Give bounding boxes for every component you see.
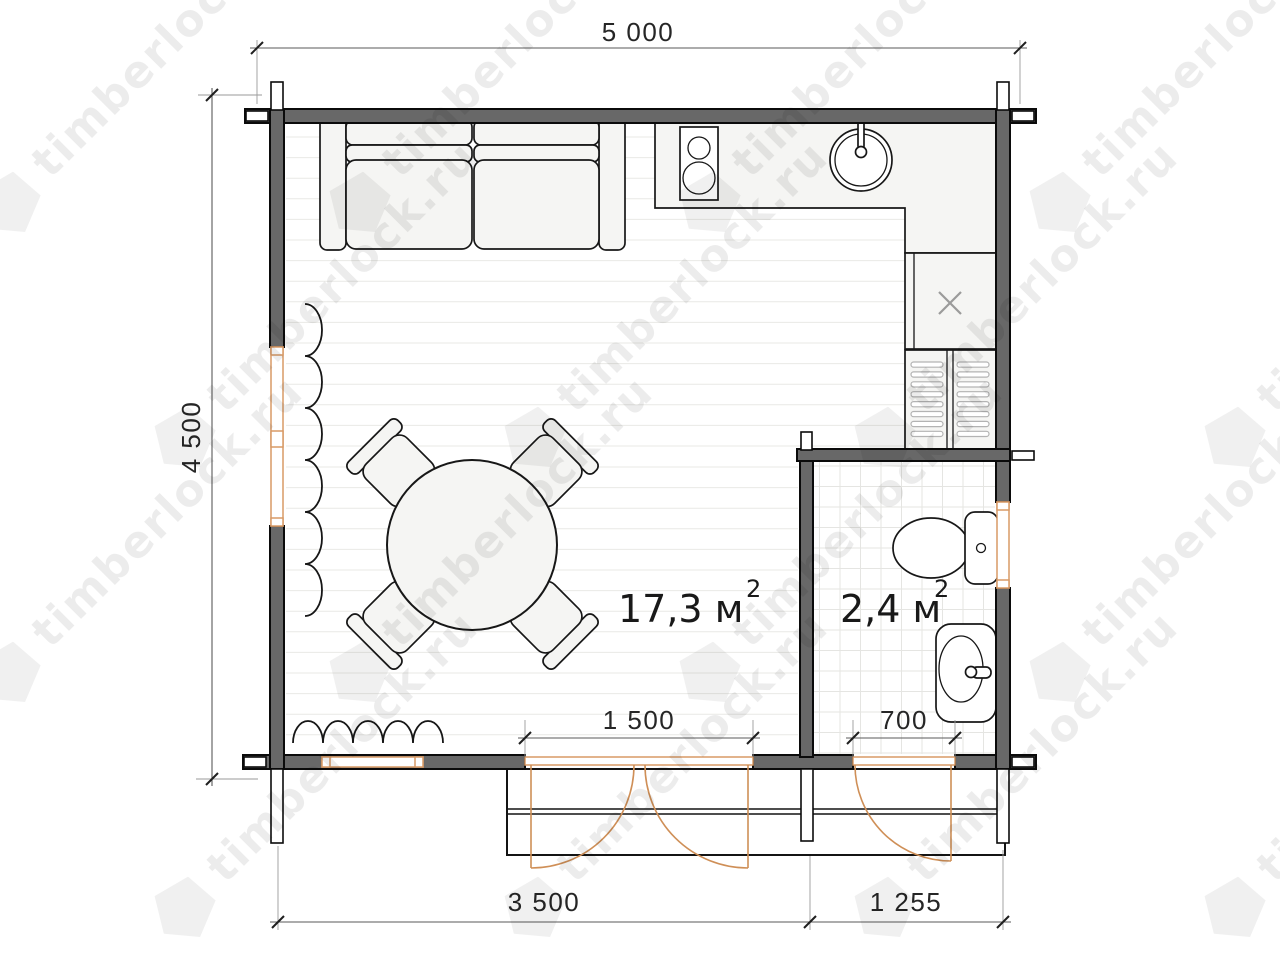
window-bathroom xyxy=(997,502,1009,588)
cooktop xyxy=(680,127,718,200)
sofa xyxy=(320,117,625,250)
door-threshold-bath xyxy=(853,757,955,765)
dim-door-main: 1 500 xyxy=(603,705,676,735)
log-stub xyxy=(246,111,268,121)
bath-faucet-head-icon xyxy=(966,667,977,678)
log-stub xyxy=(244,757,266,767)
log-stub xyxy=(271,769,283,843)
curtain-squiggle-left-icon xyxy=(305,304,322,616)
sofa-armrest-right xyxy=(599,117,625,250)
wall-left-upper xyxy=(270,109,284,347)
porch-deck xyxy=(507,769,1005,855)
dim-bottom-main: 3 500 xyxy=(508,887,581,917)
kitchen xyxy=(655,122,996,449)
log-stub xyxy=(997,82,1009,110)
bathroom-area-sup: 2 xyxy=(934,575,949,603)
dim-bottom-bath: 1 255 xyxy=(870,887,943,917)
log-stub xyxy=(271,82,283,110)
main-room-area-sup: 2 xyxy=(746,575,761,603)
sofa-armrest-left xyxy=(320,117,346,250)
sofa-seat-cushion xyxy=(474,160,599,249)
log-stub xyxy=(997,769,1009,843)
window-bottom xyxy=(322,757,423,767)
dim-height-total: 4 500 xyxy=(176,401,206,474)
log-stub xyxy=(1012,451,1034,460)
log-stub xyxy=(801,769,813,841)
dim-width-total: 5 000 xyxy=(602,17,675,47)
wall-bathroom-left xyxy=(800,461,813,757)
floor-plan-page: 5 000 4 500 1 500 700 xyxy=(0,0,1280,960)
porch xyxy=(507,769,1005,855)
log-stub xyxy=(801,432,812,450)
dining-set xyxy=(344,416,600,671)
room-labels: 17,3 м 2 2,4 м 2 xyxy=(618,575,949,631)
kitchen-faucet-head-icon xyxy=(856,147,867,158)
log-stub xyxy=(1012,111,1034,121)
main-room-area-label: 17,3 м xyxy=(618,587,743,631)
log-stub xyxy=(1012,757,1034,767)
kitchen-faucet-icon xyxy=(858,122,864,148)
wall-right-upper xyxy=(996,109,1010,502)
dining-table xyxy=(387,460,557,630)
floor-plan-drawing: 5 000 4 500 1 500 700 xyxy=(0,0,1280,960)
wall-bathroom-top xyxy=(797,449,1010,461)
bathroom-area-label: 2,4 м xyxy=(840,587,941,631)
door-threshold-main xyxy=(525,757,753,765)
wall-left-lower xyxy=(270,526,284,769)
dim-door-bath: 700 xyxy=(880,705,928,735)
toilet-bowl xyxy=(893,518,969,578)
wall-top xyxy=(245,109,1036,123)
curtain-squiggle-bottom-icon xyxy=(293,721,443,743)
wall-right-lower xyxy=(996,588,1010,769)
sofa-seat-cushion xyxy=(346,160,472,249)
toilet-tank xyxy=(965,512,998,584)
